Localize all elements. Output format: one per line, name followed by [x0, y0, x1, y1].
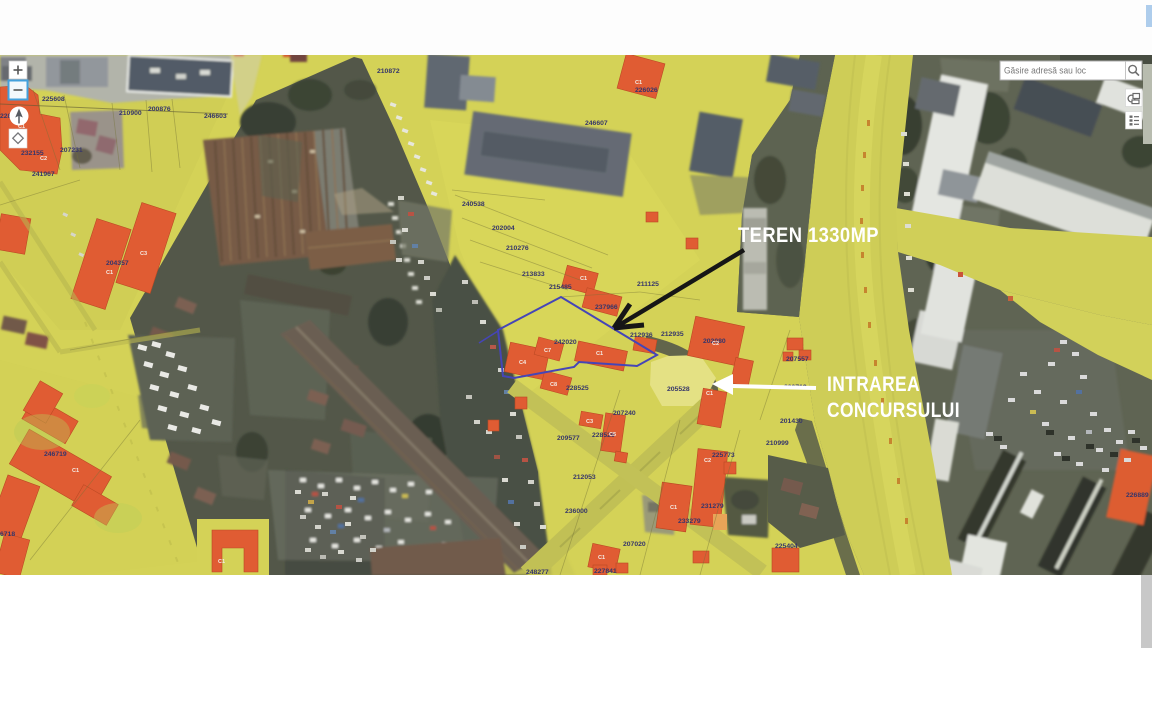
svg-text:Găsire adresă sau loc: Găsire adresă sau loc	[1004, 66, 1086, 77]
